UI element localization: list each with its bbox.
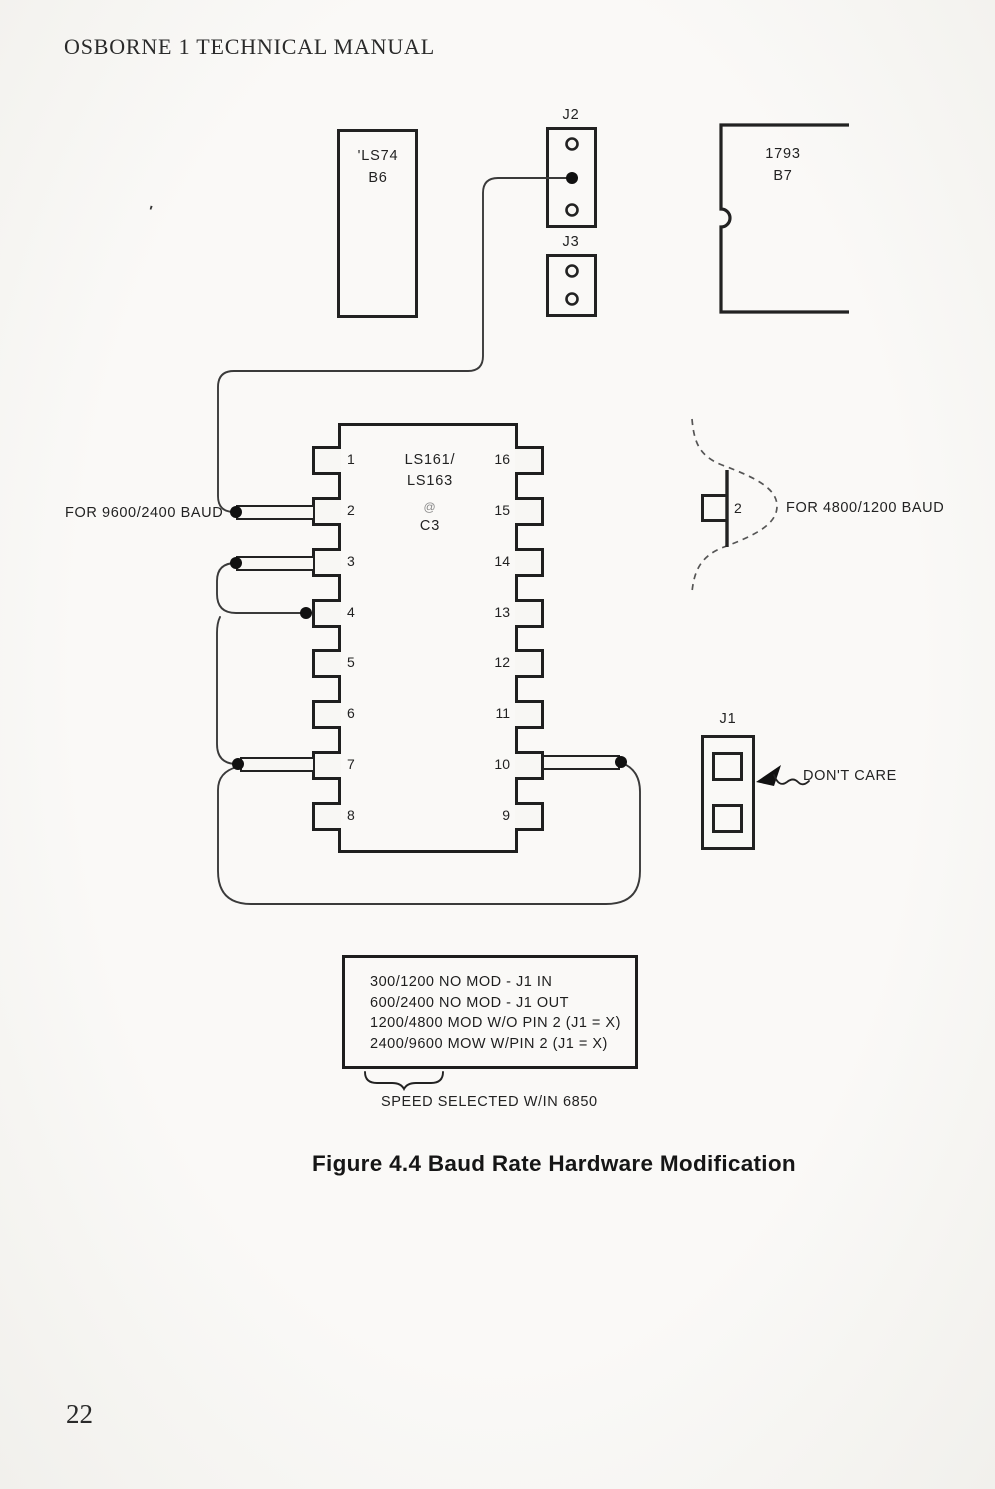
pin-label-16: 16 — [480, 451, 510, 467]
manual-page: OSBORNE 1 TECHNICAL MANUAL ' 'LS74 B6 17… — [0, 0, 995, 1489]
mod-option-row: 1200/4800 MOD W/O PIN 2 (J1 = X) — [370, 1013, 621, 1034]
chip-ls161-name-line2: LS163 — [383, 473, 477, 489]
pin-label-15: 15 — [480, 502, 510, 518]
ic-pin-box-7 — [312, 751, 341, 780]
jumper-j2-box — [546, 127, 597, 228]
wire-trace-pin7 — [240, 757, 315, 772]
ic-pin-box-8 — [312, 802, 341, 831]
page-header-title: OSBORNE 1 TECHNICAL MANUAL — [64, 34, 435, 60]
chip-ls161-location: C3 — [383, 518, 477, 534]
mod-option-row: 2400/9600 MOW W/PIN 2 (J1 = X) — [370, 1034, 621, 1055]
label-dont-care: DON'T CARE — [803, 768, 897, 784]
label-speed-selected: SPEED SELECTED W/IN 6850 — [381, 1094, 598, 1110]
label-baud-4800-1200: FOR 4800/1200 BAUD — [786, 500, 944, 516]
ic-pin-box-5 — [312, 649, 341, 678]
ic-pin-box-3 — [312, 548, 341, 577]
chip-ls74-name: 'LS74 — [345, 148, 411, 164]
jumper-j3-box — [546, 254, 597, 317]
ic-pin-box-1 — [312, 446, 341, 475]
ic-pin-box-12 — [515, 649, 544, 678]
ic-pin-box-4 — [312, 599, 341, 628]
wire-trace-pin3 — [236, 556, 315, 571]
chip-ls74-location: B6 — [345, 170, 411, 186]
pin-label-14: 14 — [480, 553, 510, 569]
pin-label-13: 13 — [480, 604, 510, 620]
dot-pin4 — [300, 607, 312, 619]
mod-options-list: 300/1200 NO MOD - J1 IN 600/2400 NO MOD … — [370, 972, 621, 1054]
pin-label-10: 10 — [480, 756, 510, 772]
pin-label-9: 9 — [480, 807, 510, 823]
pin-label-4: 4 — [347, 604, 355, 620]
chip-1793-location: B7 — [750, 168, 816, 184]
wire-trace-pin10 — [542, 755, 620, 770]
wire-junction-to-pin7 — [217, 617, 237, 764]
jumper-j1-pin-bottom — [712, 804, 743, 833]
pin-label-7: 7 — [347, 756, 355, 772]
jumper-j2-label: J2 — [557, 107, 585, 123]
detail-pin2-label: 2 — [734, 500, 742, 516]
pin-label-12: 12 — [480, 654, 510, 670]
page-number: 22 — [66, 1399, 93, 1430]
chip-ls161-name-line1: LS161/ — [383, 452, 477, 468]
chip-1793-name: 1793 — [750, 146, 816, 162]
figure-caption: Figure 4.4 Baud Rate Hardware Modificati… — [312, 1151, 796, 1177]
pin-label-3: 3 — [347, 553, 355, 569]
jumper-j3-label: J3 — [557, 234, 585, 250]
pin-label-6: 6 — [347, 705, 355, 721]
ic-pin-box-6 — [312, 700, 341, 729]
pin-label-8: 8 — [347, 807, 355, 823]
dont-care-arrowhead-icon — [756, 765, 781, 786]
jumper-j1-pin-top — [712, 752, 743, 781]
ic-pin-box-2 — [312, 497, 341, 526]
ic-pin-box-11 — [515, 700, 544, 729]
speed-selected-brace — [365, 1072, 443, 1089]
mod-option-row: 300/1200 NO MOD - J1 IN — [370, 972, 621, 993]
ic-pin-box-14 — [515, 548, 544, 577]
ic-pin-box-10 — [515, 751, 544, 780]
ic-pin-box-16 — [515, 446, 544, 475]
pin-label-1: 1 — [347, 451, 355, 467]
label-baud-9600-2400: FOR 9600/2400 BAUD — [65, 505, 223, 521]
chip-ls161-at-symbol: @ — [383, 500, 477, 514]
print-artifact-mark: ' — [145, 203, 154, 220]
pin-label-5: 5 — [347, 654, 355, 670]
mod-option-row: 600/2400 NO MOD - J1 OUT — [370, 993, 621, 1014]
detail-pin2-box — [701, 494, 728, 522]
jumper-j1-label: J1 — [714, 711, 742, 727]
ic-pin-box-13 — [515, 599, 544, 628]
ic-pin-box-15 — [515, 497, 544, 526]
wire-trace-pin2 — [236, 505, 315, 520]
pin-label-2: 2 — [347, 502, 355, 518]
ic-pin-box-9 — [515, 802, 544, 831]
pin-label-11: 11 — [480, 705, 510, 721]
